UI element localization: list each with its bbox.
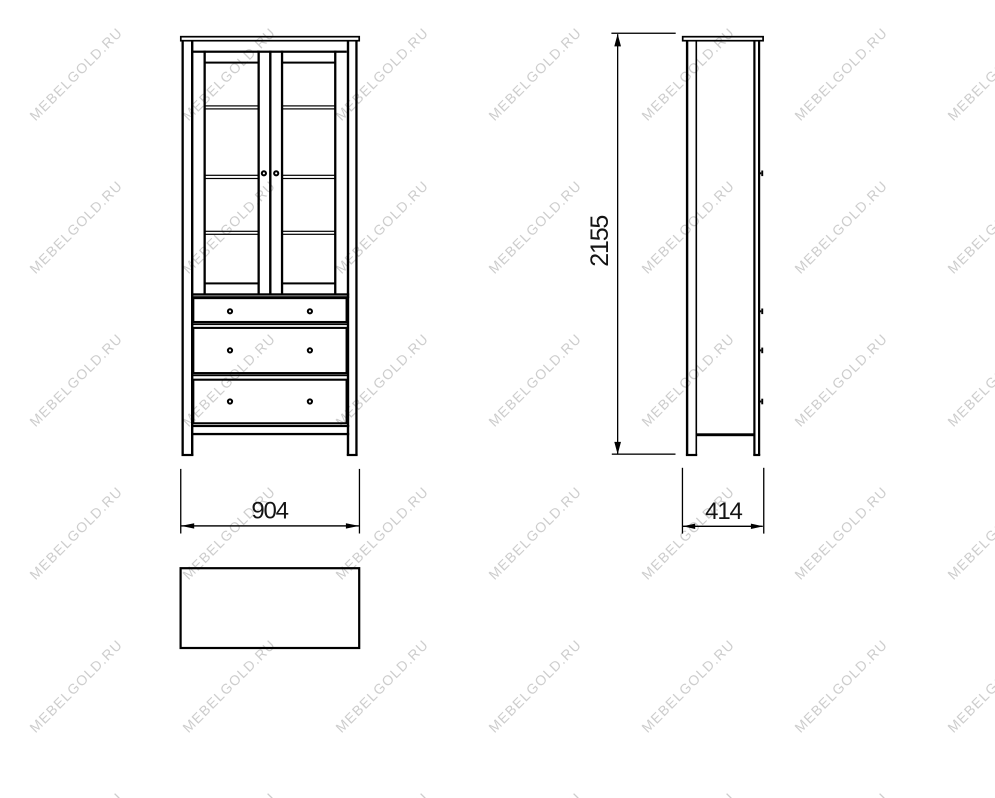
svg-text:MEBELGOLD.RU: MEBELGOLD.RU [26, 789, 125, 798]
svg-text:MEBELGOLD.RU: MEBELGOLD.RU [26, 636, 125, 735]
svg-text:MEBELGOLD.RU: MEBELGOLD.RU [332, 789, 431, 798]
svg-text:MEBELGOLD.RU: MEBELGOLD.RU [638, 636, 737, 735]
svg-text:MEBELGOLD.RU: MEBELGOLD.RU [26, 177, 125, 276]
svg-text:MEBELGOLD.RU: MEBELGOLD.RU [485, 483, 584, 582]
svg-text:MEBELGOLD.RU: MEBELGOLD.RU [638, 789, 737, 798]
svg-text:904: 904 [251, 498, 288, 525]
svg-text:MEBELGOLD.RU: MEBELGOLD.RU [485, 330, 584, 429]
svg-text:MEBELGOLD.RU: MEBELGOLD.RU [791, 789, 890, 798]
svg-text:MEBELGOLD.RU: MEBELGOLD.RU [944, 177, 995, 276]
svg-text:MEBELGOLD.RU: MEBELGOLD.RU [791, 177, 890, 276]
svg-text:MEBELGOLD.RU: MEBELGOLD.RU [179, 636, 278, 735]
svg-text:MEBELGOLD.RU: MEBELGOLD.RU [791, 330, 890, 429]
svg-text:MEBELGOLD.RU: MEBELGOLD.RU [944, 483, 995, 582]
svg-text:MEBELGOLD.RU: MEBELGOLD.RU [179, 789, 278, 798]
svg-text:MEBELGOLD.RU: MEBELGOLD.RU [944, 330, 995, 429]
svg-text:MEBELGOLD.RU: MEBELGOLD.RU [26, 330, 125, 429]
svg-text:MEBELGOLD.RU: MEBELGOLD.RU [485, 636, 584, 735]
svg-text:MEBELGOLD.RU: MEBELGOLD.RU [944, 636, 995, 735]
svg-text:MEBELGOLD.RU: MEBELGOLD.RU [944, 24, 995, 123]
svg-text:MEBELGOLD.RU: MEBELGOLD.RU [791, 636, 890, 735]
svg-text:MEBELGOLD.RU: MEBELGOLD.RU [485, 789, 584, 798]
svg-text:MEBELGOLD.RU: MEBELGOLD.RU [26, 24, 125, 123]
svg-text:MEBELGOLD.RU: MEBELGOLD.RU [485, 177, 584, 276]
svg-text:MEBELGOLD.RU: MEBELGOLD.RU [26, 483, 125, 582]
svg-text:MEBELGOLD.RU: MEBELGOLD.RU [485, 24, 584, 123]
svg-text:2155: 2155 [586, 216, 614, 267]
svg-text:MEBELGOLD.RU: MEBELGOLD.RU [791, 24, 890, 123]
svg-text:MEBELGOLD.RU: MEBELGOLD.RU [791, 483, 890, 582]
svg-text:414: 414 [705, 498, 742, 525]
svg-text:MEBELGOLD.RU: MEBELGOLD.RU [944, 789, 995, 798]
svg-text:MEBELGOLD.RU: MEBELGOLD.RU [332, 636, 431, 735]
svg-text:MEBELGOLD.RU: MEBELGOLD.RU [179, 177, 278, 276]
